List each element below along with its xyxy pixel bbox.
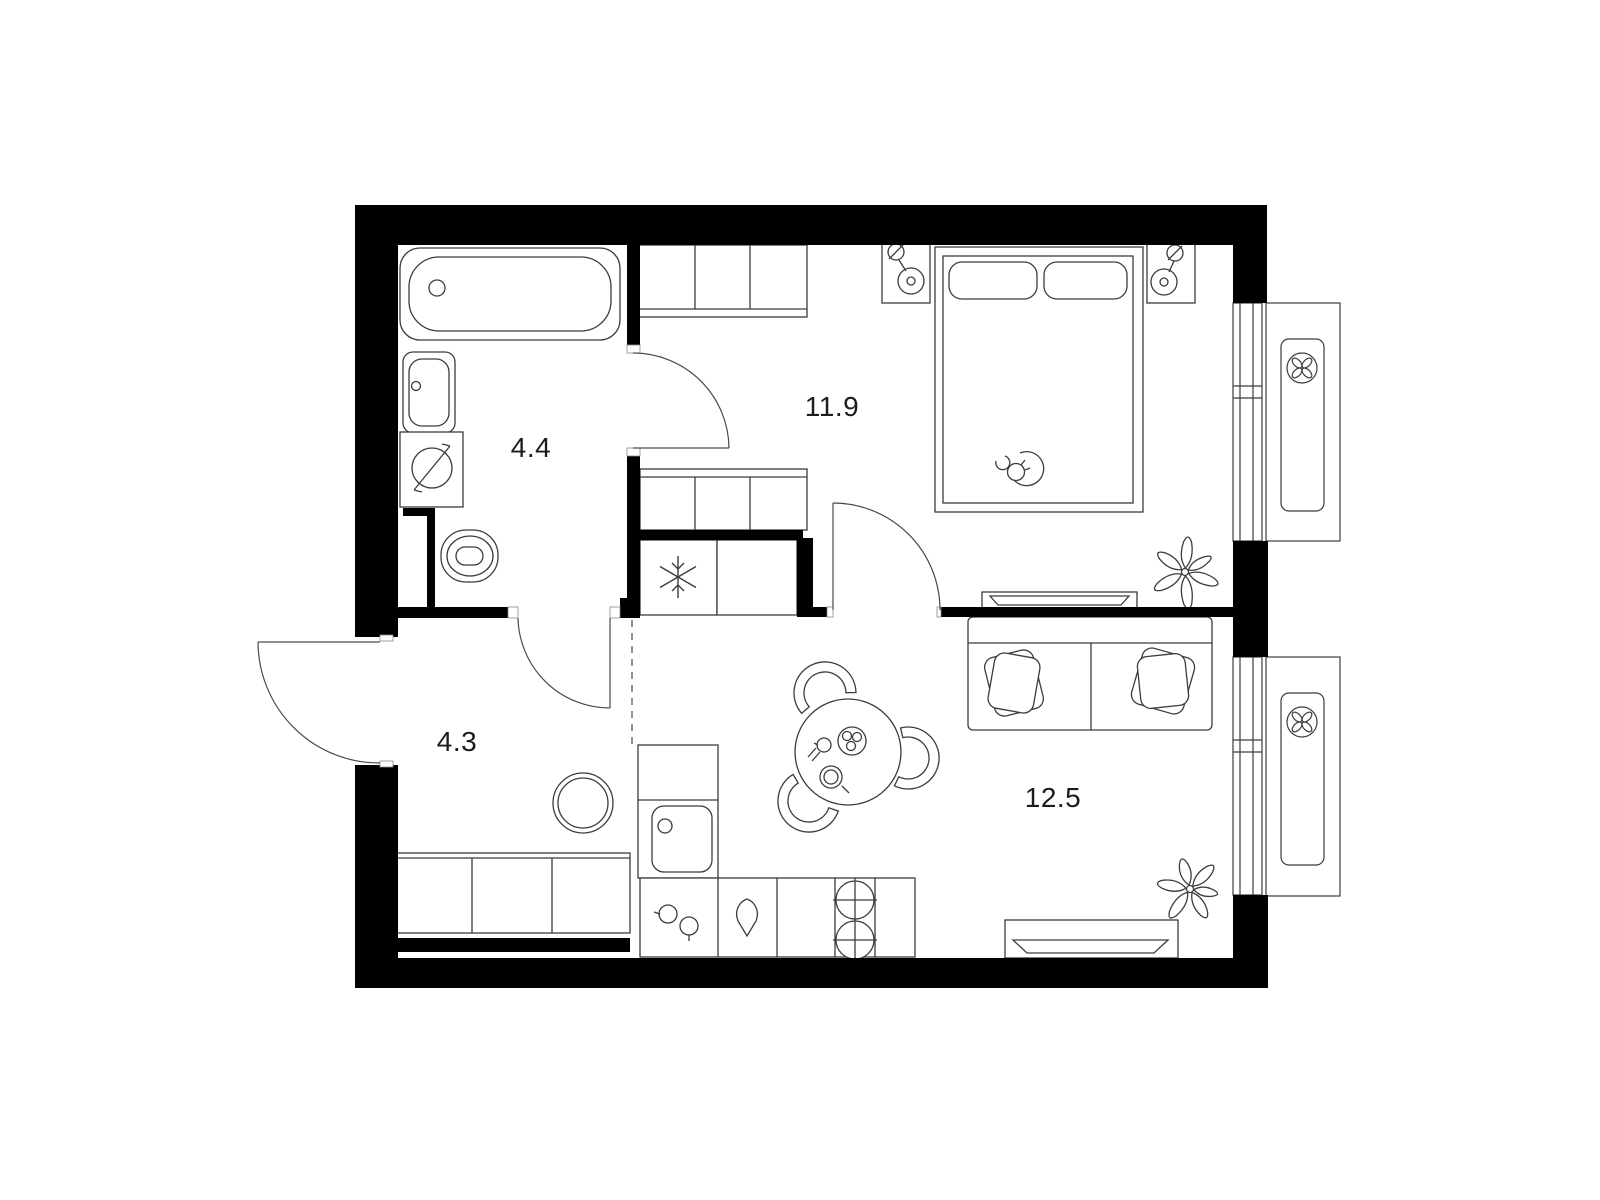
- tv-console-bedroom: [982, 592, 1137, 608]
- bathtub-icon: [400, 248, 620, 340]
- wall-bedroom-bottom-a: [813, 607, 827, 617]
- wall-left-upper: [355, 205, 398, 637]
- kitchen-counter-left: [638, 745, 718, 878]
- sofa: [968, 617, 1212, 730]
- round-stool: [553, 773, 613, 833]
- bathroom-sink-icon: [403, 352, 455, 433]
- balcony-top: [1266, 303, 1340, 541]
- tv-console-living: [1005, 920, 1178, 958]
- wall-fridge-nook-right: [797, 538, 813, 617]
- nightstand-left: [882, 242, 930, 303]
- double-bed: [935, 247, 1143, 512]
- entry-door: [258, 642, 380, 763]
- wall-bathroom-bottom: [398, 607, 508, 618]
- balcony-bottom: [1266, 657, 1340, 896]
- ac-fan-icon: [1287, 353, 1317, 383]
- room-label-bedroom: 11.9: [805, 391, 859, 422]
- wardrobe-middle: [640, 469, 807, 530]
- floor-plan-svg: 4.4 11.9 4.3 12.5: [0, 0, 1600, 1200]
- nightstand-right: [1147, 242, 1195, 303]
- wall-bathroom-right-upper: [627, 245, 640, 345]
- fridge-icon: [640, 540, 717, 615]
- sink-faucet-icon: [658, 819, 672, 833]
- floor-plan: 4.4 11.9 4.3 12.5: [0, 0, 1600, 1200]
- wall-duct-top: [403, 508, 435, 516]
- electric-panel-icon: [400, 432, 463, 507]
- room-label-living: 12.5: [1025, 782, 1082, 813]
- kitchen-counter-bottom: [640, 878, 915, 962]
- wall-duct-side: [427, 516, 435, 607]
- room-label-hallway: 4.3: [437, 726, 477, 757]
- bedroom-living-door: [833, 503, 940, 610]
- toilet-icon: [441, 530, 498, 582]
- bathroom-bedroom-door: [633, 353, 729, 448]
- wall-corner-piece: [620, 598, 640, 618]
- ac-fan-icon: [1287, 707, 1317, 737]
- dining-table: [795, 699, 901, 805]
- plant-bedroom-icon: [1152, 537, 1220, 610]
- wall-right-middle: [1233, 541, 1268, 657]
- window-bedroom: [1233, 303, 1262, 541]
- room-label-bathroom: 4.4: [511, 432, 551, 463]
- wall-bottom: [355, 958, 1268, 988]
- wall-fridge-nook-top: [627, 530, 803, 540]
- wall-right-top: [1233, 240, 1267, 303]
- hallway-cabinet: [393, 853, 630, 933]
- window-living: [1233, 657, 1262, 895]
- wall-top: [355, 205, 1267, 245]
- kitchen-cabinet: [717, 540, 797, 615]
- bathroom-hall-door: [518, 618, 610, 708]
- wall-right-bottom: [1233, 895, 1268, 975]
- wall-left-lower: [355, 765, 398, 988]
- wall-bedroom-bottom-b: [941, 607, 1233, 617]
- wardrobe-top: [638, 245, 807, 317]
- dining-chair: [894, 726, 942, 792]
- wall-hallway-bottom-bar: [391, 938, 630, 952]
